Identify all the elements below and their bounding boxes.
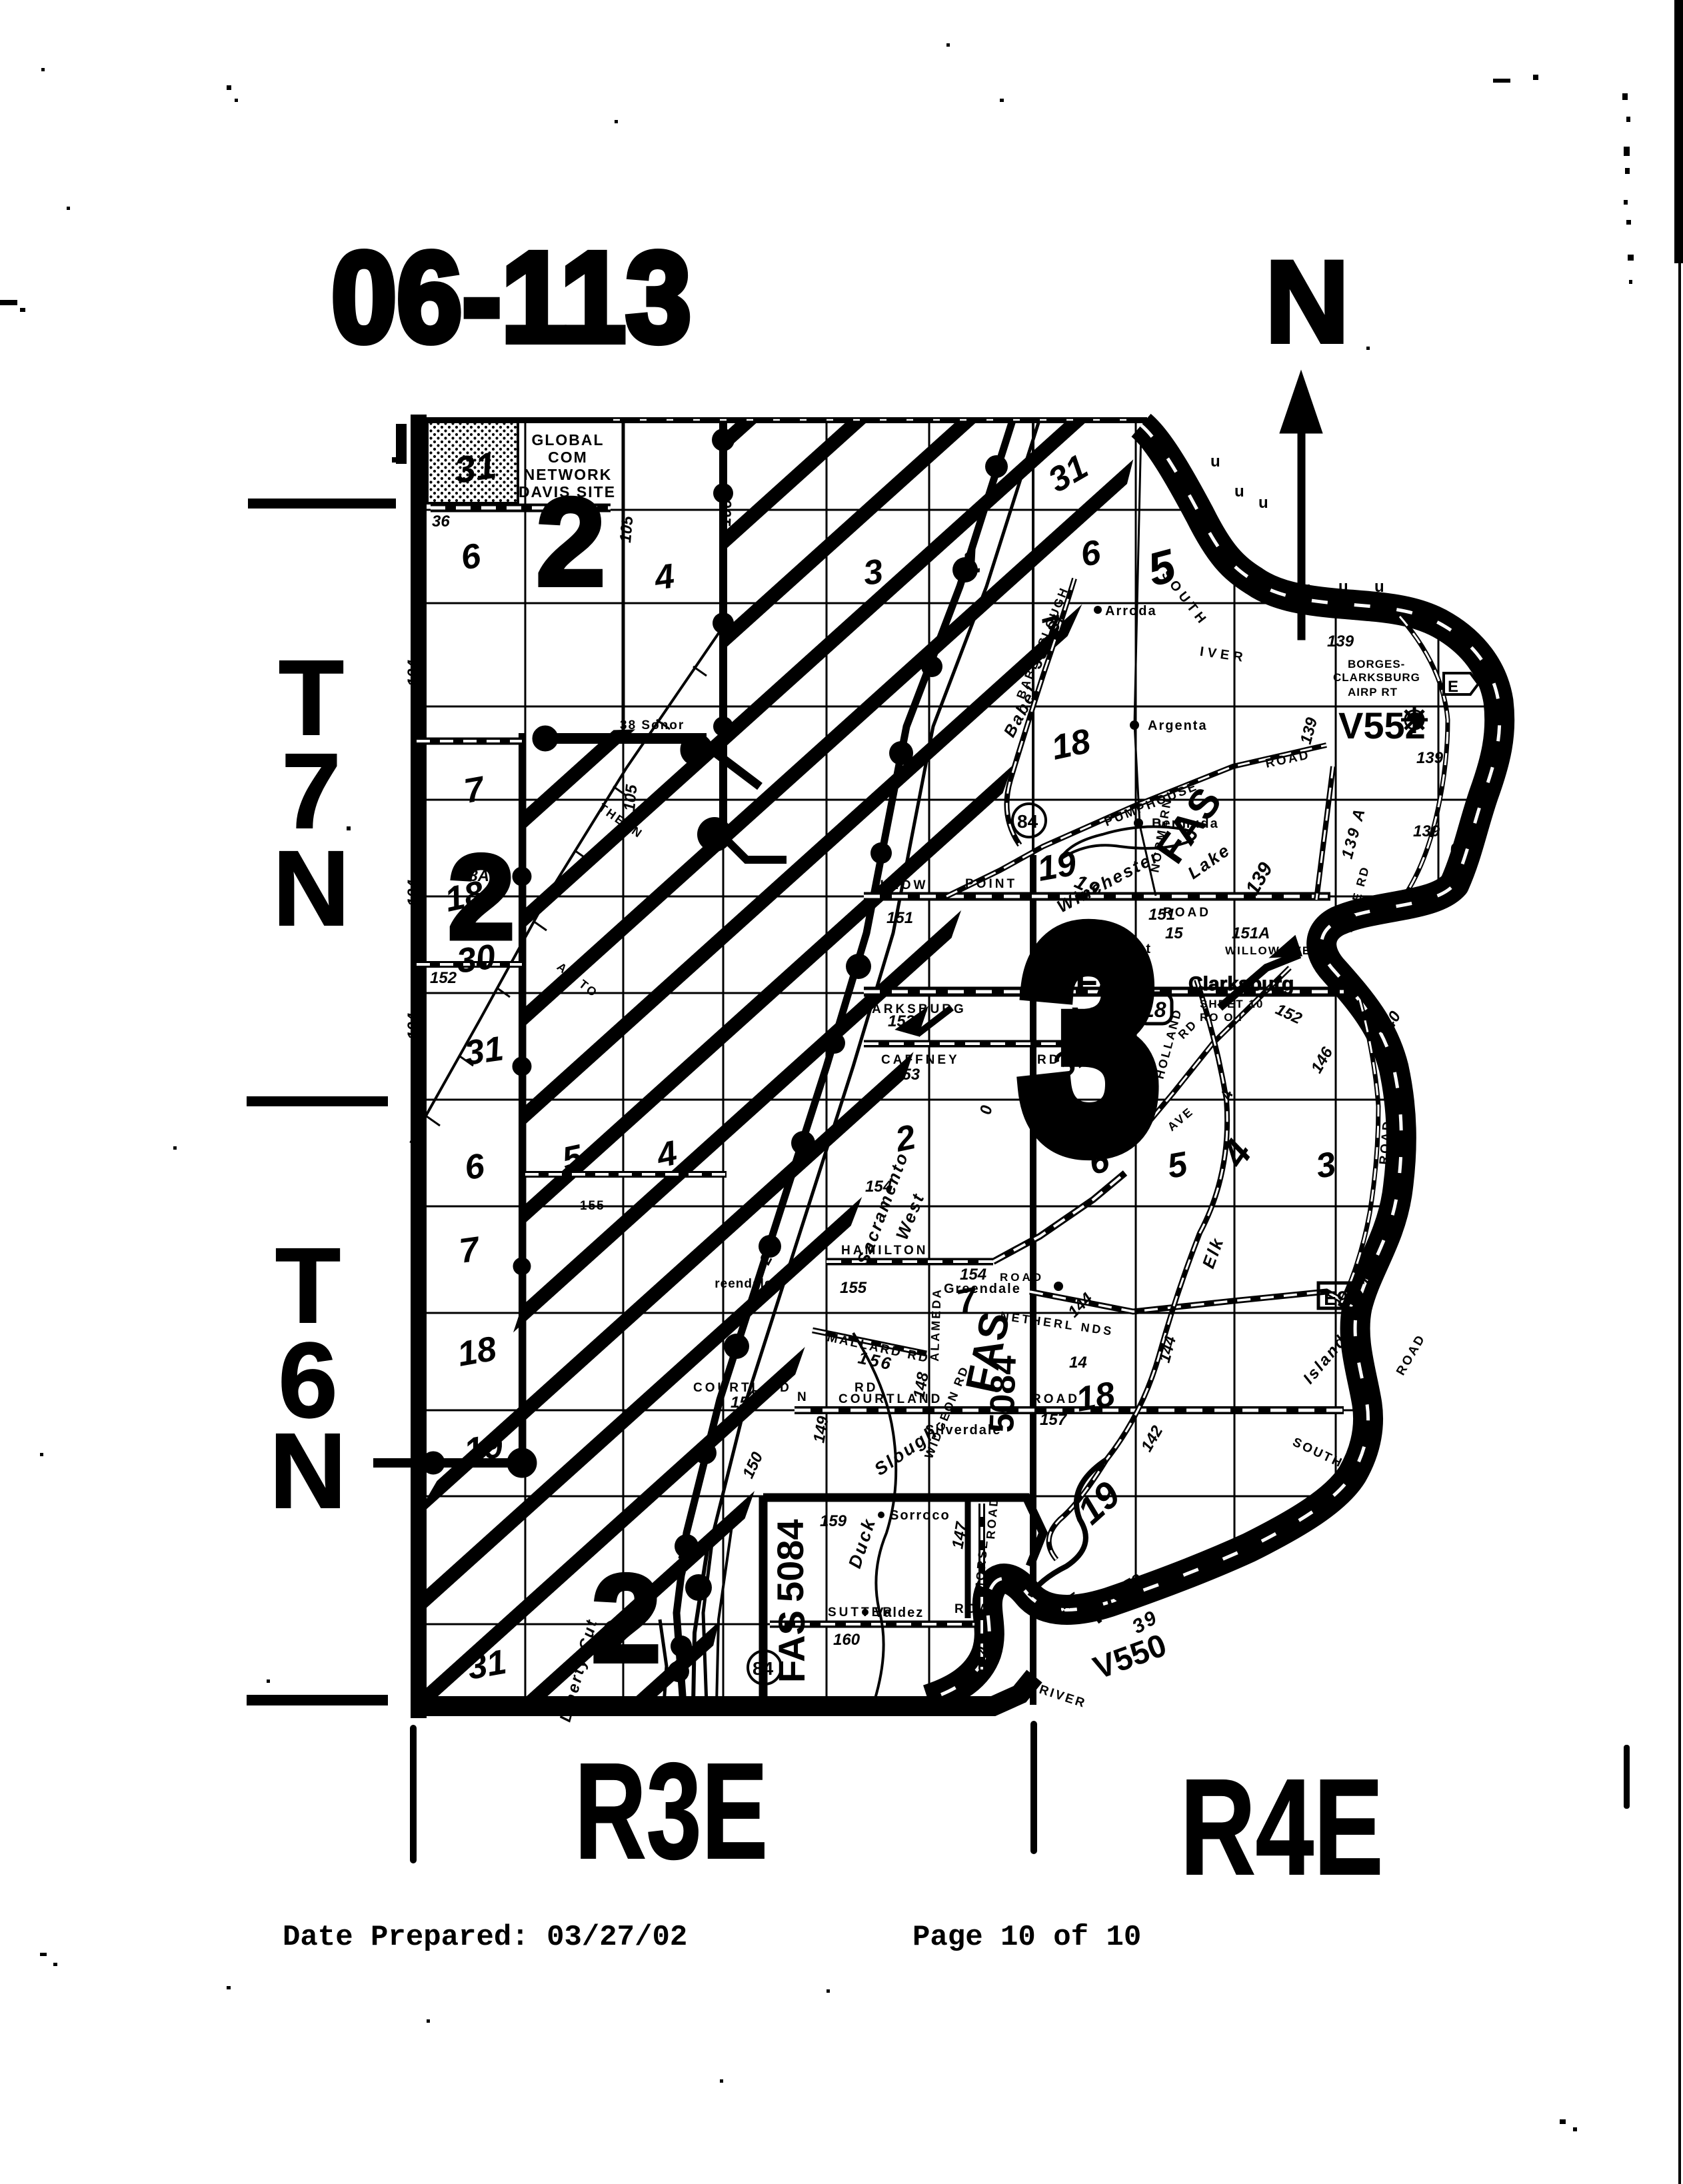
svg-text:154: 154: [865, 1178, 892, 1196]
svg-text:BORGES-: BORGES-: [1348, 658, 1405, 670]
svg-text:E9: E9: [1324, 1288, 1348, 1310]
svg-text:104: 104: [405, 660, 423, 686]
svg-text:18: 18: [1073, 1375, 1118, 1420]
svg-text:SHEET 10: SHEET 10: [1200, 998, 1264, 1010]
svg-text:5084: 5084: [769, 1519, 811, 1602]
svg-text:106: 106: [717, 499, 735, 527]
svg-text:139: 139: [1327, 632, 1354, 650]
svg-text:15: 15: [1165, 924, 1187, 942]
svg-text:CAFFNEY: CAFFNEY: [881, 1053, 960, 1067]
svg-text:N: N: [269, 1411, 347, 1530]
svg-text:18: 18: [455, 1330, 499, 1374]
svg-text:ALAMEDA: ALAMEDA: [928, 1288, 944, 1362]
svg-text:104: 104: [405, 1013, 423, 1040]
svg-text:18: 18: [1048, 722, 1094, 768]
svg-text:84: 84: [1017, 811, 1038, 832]
svg-text:V55: V55: [1072, 999, 1138, 1041]
svg-text:Arroda: Arroda: [1105, 604, 1157, 618]
svg-text:105: 105: [617, 515, 637, 544]
svg-text:30: 30: [455, 937, 498, 980]
svg-text:152: 152: [888, 1012, 915, 1030]
svg-text:R4E: R4E: [1180, 1751, 1384, 1903]
svg-text:R3E: R3E: [575, 1735, 768, 1887]
svg-text:155: 155: [580, 1199, 605, 1213]
svg-text:COM: COM: [548, 449, 588, 466]
svg-text:CLARKSBURG: CLARKSBURG: [1333, 671, 1420, 684]
svg-text:u: u: [1338, 578, 1348, 596]
svg-text:14: 14: [1069, 1354, 1091, 1372]
svg-text:157: 157: [1040, 1411, 1068, 1429]
svg-text:151: 151: [886, 909, 913, 927]
svg-text:N: N: [273, 828, 350, 948]
svg-text:GLOBAL: GLOBAL: [531, 431, 604, 449]
svg-text:RD: RD: [854, 1381, 878, 1395]
svg-text:ROAD: ROAD: [954, 1602, 1002, 1616]
svg-text:reendale: reendale: [711, 1277, 772, 1291]
svg-text:ILLOW: ILLOW: [868, 878, 928, 892]
svg-text:ARKSBURG: ARKSBURG: [872, 1002, 966, 1016]
svg-text:139: 139: [1416, 749, 1448, 767]
svg-text:38 Sonor: 38 Sonor: [620, 718, 690, 732]
svg-text:150: 150: [731, 1394, 762, 1412]
svg-text:31: 31: [463, 1029, 506, 1072]
svg-text:RO O I: RO O I: [1200, 1011, 1243, 1024]
svg-text:RD: RD: [1037, 1053, 1060, 1067]
svg-text:N: N: [797, 1390, 809, 1404]
svg-text:154: 154: [960, 1266, 986, 1284]
svg-text:u: u: [1234, 483, 1244, 501]
svg-text:Bermuda: Bermuda: [1152, 816, 1219, 831]
svg-text:AIRP RT: AIRP RT: [1348, 686, 1398, 698]
svg-text:ROAD: ROAD: [1032, 1392, 1080, 1406]
svg-text:31: 31: [452, 444, 499, 491]
svg-text:Argenta: Argenta: [1148, 718, 1208, 733]
svg-text:2: 2: [592, 1550, 661, 1687]
svg-text:06-113: 06-113: [331, 225, 691, 369]
svg-text:Sorroco: Sorroco: [890, 1508, 950, 1523]
svg-text:2: 2: [536, 472, 606, 612]
svg-text:155: 155: [840, 1279, 867, 1297]
svg-text:WILLOW AVE: WILLOW AVE: [1225, 944, 1311, 957]
svg-text:POINT: POINT: [965, 877, 1017, 891]
svg-text:N: N: [1265, 237, 1349, 367]
svg-text:Page 10 of 10: Page 10 of 10: [912, 1921, 1141, 1954]
svg-text:E: E: [1448, 678, 1463, 696]
svg-text:Greendale: Greendale: [944, 1282, 1021, 1296]
svg-text:u: u: [1374, 578, 1384, 596]
svg-text:Date Prepared: 03/27/02: Date Prepared: 03/27/02: [283, 1921, 687, 1954]
svg-text:COURTL ND: COURTL ND: [693, 1381, 792, 1395]
svg-text:31: 31: [465, 1643, 509, 1687]
svg-text:19: 19: [1034, 844, 1079, 889]
svg-text:5084: 5084: [982, 1355, 1024, 1434]
svg-text:160: 160: [833, 1631, 860, 1649]
svg-text:152: 152: [430, 969, 457, 987]
svg-text:153: 153: [893, 1066, 920, 1084]
svg-text:Point: Point: [1112, 942, 1152, 956]
svg-text:u: u: [1258, 494, 1268, 512]
svg-text:105: 105: [621, 784, 641, 812]
svg-text:u: u: [1210, 453, 1220, 471]
svg-text:159: 159: [820, 1512, 847, 1530]
svg-text:FAS: FAS: [771, 1610, 813, 1683]
svg-text:151A: 151A: [1232, 924, 1274, 942]
svg-text:104: 104: [405, 880, 423, 906]
svg-text:38A: 38A: [460, 867, 489, 885]
svg-text:Clarksburg: Clarksburg: [1188, 973, 1294, 995]
svg-text:Silverdale: Silverdale: [925, 1423, 1002, 1438]
svg-text:18: 18: [1142, 998, 1166, 1022]
svg-text:FAS: FAS: [1075, 960, 1148, 1002]
svg-text:19: 19: [461, 1426, 506, 1471]
svg-text:36: 36: [432, 513, 450, 531]
svg-text:Valdez: Valdez: [874, 1606, 924, 1620]
svg-text:84: 84: [753, 1658, 774, 1679]
svg-text:151: 151: [1148, 906, 1175, 924]
svg-text:139: 139: [1413, 822, 1440, 840]
